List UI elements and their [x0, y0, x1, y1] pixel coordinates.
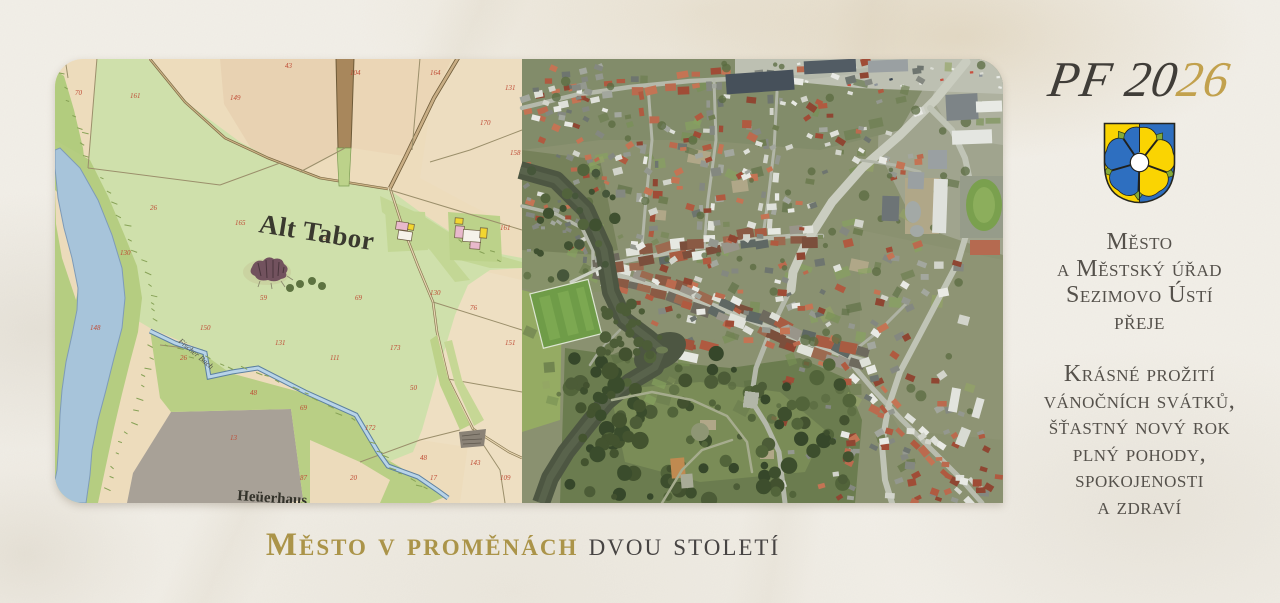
svg-text:149: 149 — [230, 94, 241, 102]
svg-text:151: 151 — [505, 339, 516, 347]
svg-text:143: 143 — [470, 459, 481, 467]
svg-text:17: 17 — [430, 474, 438, 482]
svg-text:50: 50 — [410, 384, 418, 392]
svg-text:148: 148 — [90, 324, 101, 332]
svg-text:170: 170 — [480, 119, 491, 127]
svg-text:158: 158 — [510, 149, 521, 157]
svg-text:130: 130 — [120, 249, 131, 257]
svg-text:13: 13 — [230, 434, 238, 442]
svg-text:172: 172 — [365, 424, 376, 432]
svg-text:131: 131 — [505, 84, 516, 92]
svg-text:150: 150 — [200, 324, 211, 332]
svg-text:161: 161 — [500, 224, 511, 232]
svg-text:59: 59 — [260, 294, 268, 302]
svg-text:104: 104 — [350, 69, 361, 77]
svg-text:26: 26 — [150, 204, 158, 212]
svg-text:130: 130 — [430, 289, 441, 297]
svg-text:76: 76 — [470, 304, 478, 312]
svg-text:69: 69 — [300, 404, 308, 412]
svg-text:43: 43 — [285, 62, 293, 70]
svg-text:111: 111 — [330, 354, 339, 362]
svg-text:87: 87 — [300, 474, 308, 482]
svg-text:164: 164 — [430, 69, 441, 77]
svg-text:69: 69 — [355, 294, 363, 302]
svg-text:48: 48 — [420, 454, 428, 462]
svg-text:70: 70 — [75, 89, 83, 97]
svg-text:131: 131 — [275, 339, 286, 347]
svg-text:173: 173 — [390, 344, 401, 352]
svg-text:165: 165 — [235, 219, 246, 227]
svg-text:109: 109 — [500, 474, 511, 482]
svg-text:161: 161 — [130, 92, 141, 100]
svg-text:48: 48 — [250, 389, 258, 397]
svg-text:20: 20 — [350, 474, 358, 482]
svg-text:26: 26 — [180, 354, 188, 362]
